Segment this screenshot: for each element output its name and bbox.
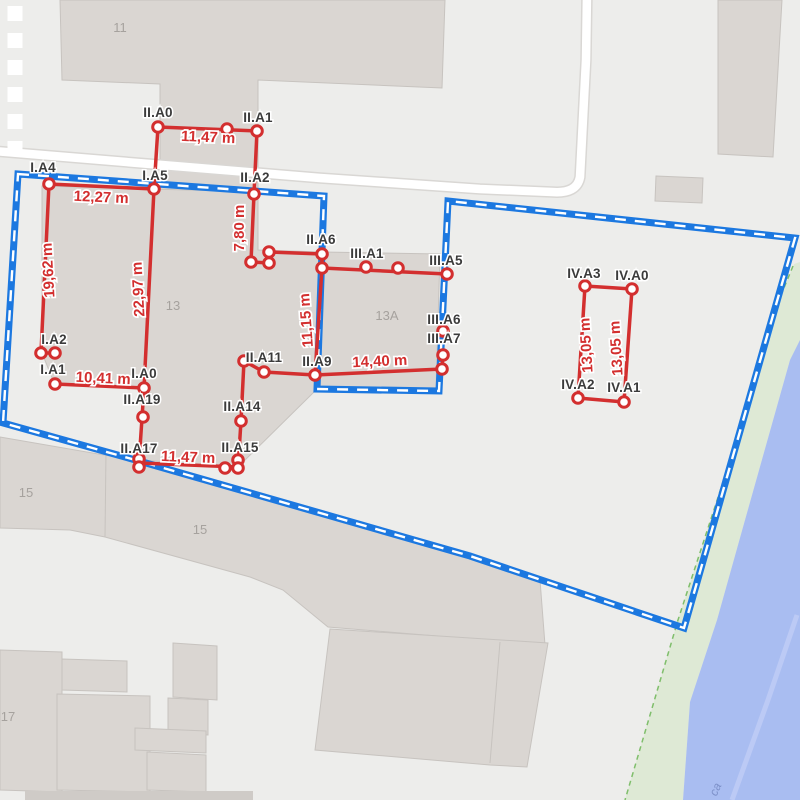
survey-point[interactable] (134, 462, 145, 473)
distance-label: 13,05 m (606, 320, 626, 376)
building-topright (718, 0, 782, 157)
survey-point[interactable] (259, 367, 270, 378)
point-label-ii-a15: II.A15 (221, 440, 259, 455)
point-label-iv-a0: IV.A0 (615, 268, 649, 283)
distance-label: 13,05 m (576, 317, 596, 373)
survey-point[interactable] (50, 379, 61, 390)
point-label-ii-a17: II.A17 (120, 441, 157, 456)
point-label-iii-a1: III.A1 (350, 246, 384, 261)
map-parcel-label: 17 (1, 709, 15, 724)
point-label-i-a1: I.A1 (40, 362, 66, 377)
map-view: 111313A151517caII.A0II.A1I.A4I.A5II.A2II… (0, 0, 800, 800)
point-label-ii-a6: II.A6 (306, 232, 336, 247)
survey-point[interactable] (252, 126, 263, 137)
survey-point[interactable] (393, 263, 404, 274)
building-small-ne (655, 176, 703, 203)
survey-point[interactable] (36, 348, 47, 359)
distance-label: 10,41 m (75, 369, 131, 388)
survey-point[interactable] (361, 262, 372, 273)
point-label-ii-a14: II.A14 (223, 399, 261, 414)
survey-point[interactable] (619, 397, 630, 408)
map-canvas[interactable]: 111313A151517caII.A0II.A1I.A4I.A5II.A2II… (0, 0, 800, 800)
point-label-iv-a3: IV.A3 (567, 266, 601, 281)
point-label-iv-a2: IV.A2 (561, 377, 595, 392)
point-label-ii-a19: II.A19 (123, 392, 160, 407)
map-parcel-label: 15 (19, 485, 33, 500)
point-label-ii-a11: II.A11 (246, 350, 283, 365)
survey-point[interactable] (153, 122, 164, 133)
measurement-line[interactable] (269, 252, 322, 254)
map-parcel-label: 11 (113, 20, 127, 35)
point-label-ii-a2: II.A2 (240, 170, 270, 185)
survey-point[interactable] (627, 284, 638, 295)
point-label-i-a0: I.A0 (131, 366, 157, 381)
distance-label: 7,80 m (231, 205, 248, 252)
map-parcel-label: 13 (166, 298, 180, 313)
point-label-ii-a0: II.A0 (143, 105, 173, 120)
distance-label: 11,47 m (181, 128, 236, 147)
survey-point[interactable] (246, 257, 257, 268)
point-label-iii-a5: III.A5 (429, 253, 463, 268)
point-label-ii-a9: II.A9 (302, 354, 332, 369)
distance-label: 14,40 m (352, 352, 408, 371)
survey-point[interactable] (264, 247, 275, 258)
survey-point[interactable] (310, 370, 321, 381)
point-label-i-a2: I.A2 (41, 332, 67, 347)
survey-point[interactable] (249, 189, 260, 200)
map-parcel-label: 15 (193, 522, 207, 537)
point-label-i-a4: I.A4 (30, 160, 56, 175)
building-mid-d (147, 752, 206, 792)
survey-point[interactable] (438, 350, 449, 361)
distance-label: 19,62 m (39, 242, 59, 298)
map-parcel-label: 13A (375, 308, 398, 323)
building-lower-big (315, 629, 548, 767)
survey-point[interactable] (442, 269, 453, 280)
survey-point[interactable] (138, 412, 149, 423)
survey-point[interactable] (437, 364, 448, 375)
survey-point[interactable] (236, 416, 247, 427)
distance-label: 12,27 m (73, 188, 129, 207)
survey-point[interactable] (44, 179, 55, 190)
building-mid-a (173, 643, 217, 700)
survey-point[interactable] (317, 249, 328, 260)
distance-label: 22,97 m (129, 261, 149, 317)
survey-point[interactable] (233, 463, 244, 474)
survey-point[interactable] (264, 258, 275, 269)
survey-point[interactable] (149, 184, 160, 195)
survey-point[interactable] (220, 463, 231, 474)
survey-point[interactable] (580, 281, 591, 292)
survey-point[interactable] (573, 393, 584, 404)
bottom-edge-structure (25, 791, 253, 800)
distance-label: 11,47 m (161, 448, 216, 467)
building-mid-c (135, 728, 206, 753)
survey-point[interactable] (317, 263, 328, 274)
point-label-iii-a6: III.A6 (427, 312, 461, 327)
point-label-ii-a1: II.A1 (243, 110, 273, 125)
point-label-iv-a1: IV.A1 (607, 380, 641, 395)
point-label-i-a5: I.A5 (142, 168, 168, 183)
survey-point[interactable] (50, 348, 61, 359)
building-17-b (62, 659, 127, 692)
point-label-iii-a7: III.A7 (427, 331, 460, 346)
